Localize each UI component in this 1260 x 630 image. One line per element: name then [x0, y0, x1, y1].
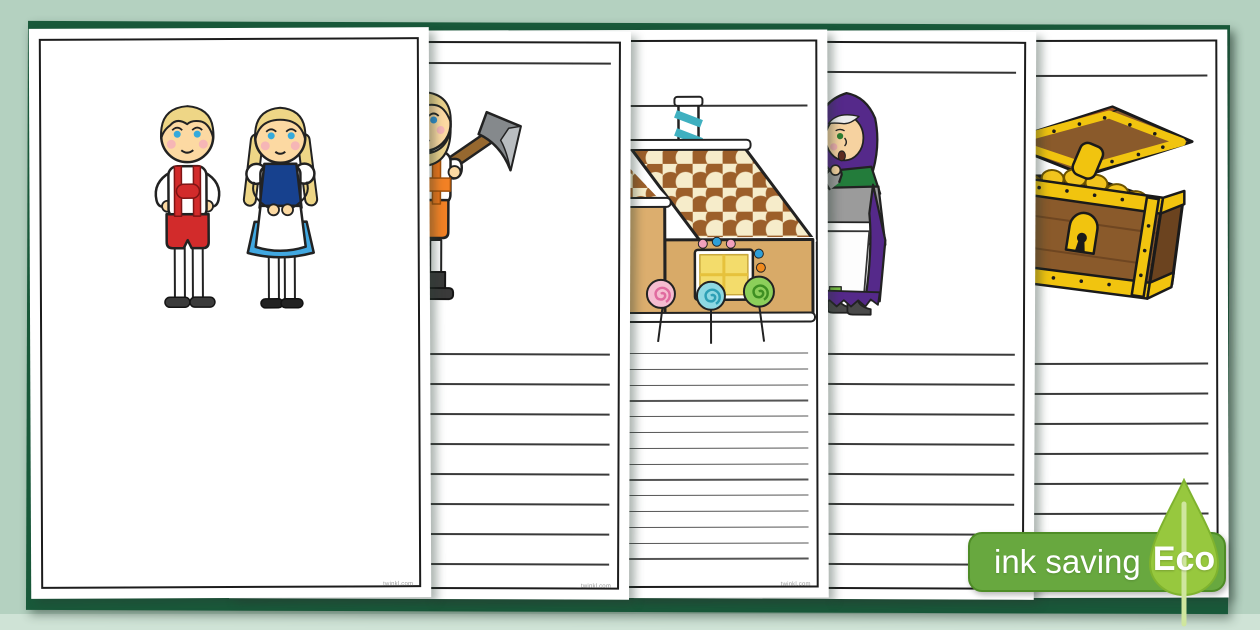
eco-label: Eco: [1144, 540, 1224, 579]
product-preview: twinkl.com: [0, 0, 1260, 630]
twinkl-watermark: twinkl.com: [781, 582, 811, 588]
twinkl-watermark: twinkl.com: [383, 581, 413, 587]
twinkl-watermark: twinkl.com: [581, 584, 611, 590]
background-bottom-band: [0, 614, 1260, 630]
hansel-and-gretel-illustration: [134, 92, 335, 333]
ink-saving-label: ink saving: [970, 543, 1141, 581]
page-hansel-and-gretel: twinkl.com: [29, 27, 431, 599]
